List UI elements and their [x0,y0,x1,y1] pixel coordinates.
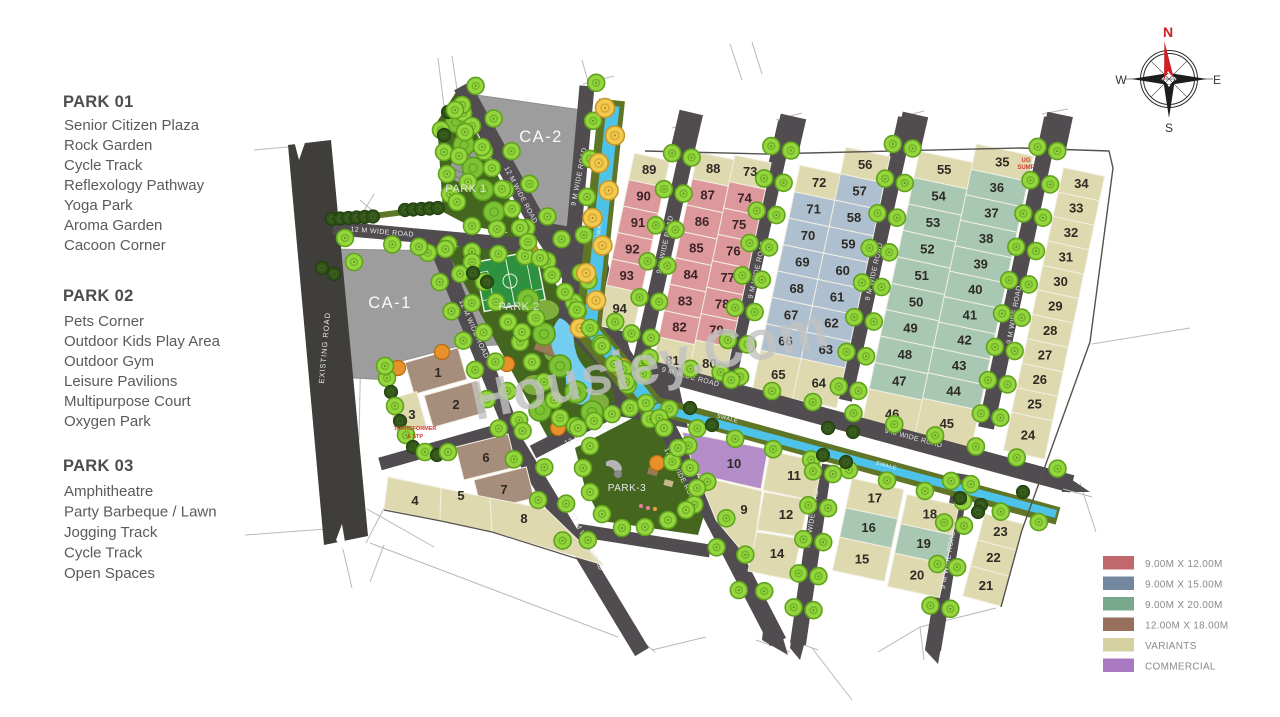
svg-text:75: 75 [732,217,746,232]
svg-text:41: 41 [963,307,977,322]
svg-text:TRANSFORMER: TRANSFORMER [394,426,437,432]
svg-text:40: 40 [968,282,982,297]
svg-text:VARIANTS: VARIANTS [1145,641,1197,652]
svg-text:44: 44 [946,384,961,399]
svg-text:55: 55 [937,162,951,177]
svg-text:Amphitheatre: Amphitheatre [64,483,153,500]
svg-text:PARK 02: PARK 02 [63,287,134,305]
svg-text:Open Spaces: Open Spaces [64,565,155,582]
svg-text:PARK 1: PARK 1 [445,183,486,195]
svg-text:42: 42 [957,333,971,348]
svg-text:W: W [1115,73,1127,87]
svg-text:22: 22 [986,550,1000,565]
svg-text:12.00M X 18.00M: 12.00M X 18.00M [1145,621,1228,632]
svg-text:21: 21 [979,578,993,593]
svg-text:Reflexology Pathway: Reflexology Pathway [64,177,205,194]
svg-text:77: 77 [720,270,734,285]
svg-text:69: 69 [795,254,809,269]
svg-text:Cycle Track: Cycle Track [64,157,143,174]
svg-text:49: 49 [903,321,917,336]
svg-text:SUMP: SUMP [1017,165,1034,171]
svg-text:19: 19 [916,536,930,551]
svg-text:S: S [1165,121,1173,135]
svg-text:91: 91 [631,215,645,230]
svg-text:9.00M X 15.00M: 9.00M X 15.00M [1145,580,1223,591]
svg-text:52: 52 [920,241,934,256]
svg-text:Rock Garden: Rock Garden [64,137,152,154]
svg-text:4: 4 [411,493,419,508]
svg-text:17: 17 [868,491,882,506]
svg-text:72: 72 [812,175,826,190]
svg-text:Senior Citizen Plaza: Senior Citizen Plaza [64,117,200,134]
svg-text:28: 28 [1043,323,1057,338]
svg-text:CA-1: CA-1 [368,294,412,312]
svg-text:10: 10 [727,456,741,471]
svg-text:Party Barbeque / Lawn: Party Barbeque / Lawn [64,504,217,521]
svg-text:53: 53 [926,215,940,230]
svg-text:37: 37 [984,206,998,221]
svg-text:89: 89 [642,162,656,177]
svg-text:54: 54 [931,189,946,204]
svg-text:31: 31 [1059,250,1073,265]
svg-text:93: 93 [619,268,633,283]
svg-text:57: 57 [852,184,866,199]
svg-text:3: 3 [408,407,415,422]
svg-text:60: 60 [835,263,849,278]
svg-text:5: 5 [457,488,464,503]
svg-text:30: 30 [1053,274,1067,289]
svg-text:56: 56 [858,157,872,172]
svg-text:Leisure Pavilions: Leisure Pavilions [64,373,177,390]
svg-text:9.00M X 12.00M: 9.00M X 12.00M [1145,559,1223,570]
svg-text:34: 34 [1074,176,1089,191]
svg-text:47: 47 [892,374,906,389]
svg-text:Aroma Garden: Aroma Garden [64,217,162,234]
svg-text:36: 36 [990,180,1004,195]
svg-text:Jogging Track: Jogging Track [64,524,158,541]
svg-text:76: 76 [726,243,740,258]
svg-text:84: 84 [683,267,698,282]
svg-text:51: 51 [914,268,928,283]
svg-text:Outdoor Gym: Outdoor Gym [64,353,154,370]
svg-text:48: 48 [898,347,912,362]
svg-text:Yoga Park: Yoga Park [64,197,133,214]
svg-text:PARK 01: PARK 01 [63,93,134,111]
svg-text:27: 27 [1038,347,1052,362]
svg-text:45: 45 [940,416,954,431]
svg-text:7: 7 [500,482,507,497]
svg-text:29: 29 [1048,299,1062,314]
svg-text:15: 15 [855,551,869,566]
svg-text:68: 68 [789,281,803,296]
svg-text:23: 23 [993,524,1007,539]
svg-text:PARK 2: PARK 2 [498,301,539,313]
svg-text:& STP: & STP [407,434,424,440]
svg-text:CA-2: CA-2 [519,128,563,146]
svg-text:Oxygen Park: Oxygen Park [64,413,151,430]
svg-text:1: 1 [434,365,441,380]
svg-text:Cacoon Corner: Cacoon Corner [64,237,166,254]
svg-text:Outdoor Kids Play Area: Outdoor Kids Play Area [64,333,221,350]
svg-text:12: 12 [779,507,793,522]
svg-text:83: 83 [678,293,692,308]
svg-text:32: 32 [1064,225,1078,240]
svg-text:E: E [1213,73,1221,87]
svg-text:92: 92 [625,241,639,256]
svg-text:39: 39 [973,256,987,271]
svg-text:58: 58 [847,210,861,225]
svg-text:8: 8 [520,511,527,526]
svg-text:PARK-3: PARK-3 [608,483,646,494]
svg-text:88: 88 [706,161,720,176]
svg-text:COMMERCIAL: COMMERCIAL [1145,662,1216,673]
svg-text:24: 24 [1021,428,1036,443]
svg-text:14: 14 [770,546,785,561]
svg-text:9: 9 [740,502,747,517]
svg-text:Pets Corner: Pets Corner [64,313,144,330]
svg-text:11: 11 [787,468,801,483]
svg-text:N: N [1163,24,1173,40]
svg-text:UG: UG [1022,158,1031,164]
svg-text:74: 74 [737,191,752,206]
svg-text:86: 86 [695,214,709,229]
svg-text:35: 35 [995,155,1009,170]
svg-text:25: 25 [1027,396,1041,411]
svg-text:64: 64 [812,375,827,390]
svg-text:90: 90 [636,189,650,204]
svg-text:20: 20 [910,567,924,582]
svg-text:26: 26 [1033,372,1047,387]
svg-text:59: 59 [841,236,855,251]
svg-text:Multipurpose Court: Multipurpose Court [64,393,192,410]
svg-text:33: 33 [1069,201,1083,216]
svg-text:38: 38 [979,231,993,246]
svg-text:70: 70 [801,228,815,243]
svg-text:87: 87 [700,188,714,203]
svg-text:71: 71 [806,202,820,217]
svg-text:6: 6 [482,450,489,465]
svg-text:50: 50 [909,294,923,309]
svg-text:85: 85 [689,240,703,255]
svg-text:Cycle Track: Cycle Track [64,545,143,562]
svg-text:9.00M X 20.00M: 9.00M X 20.00M [1145,600,1223,611]
svg-text:61: 61 [830,289,844,304]
svg-text:2: 2 [452,397,459,412]
svg-text:PARK 03: PARK 03 [63,457,134,475]
svg-text:18: 18 [923,507,937,522]
svg-text:43: 43 [952,358,966,373]
svg-text:16: 16 [861,520,875,535]
